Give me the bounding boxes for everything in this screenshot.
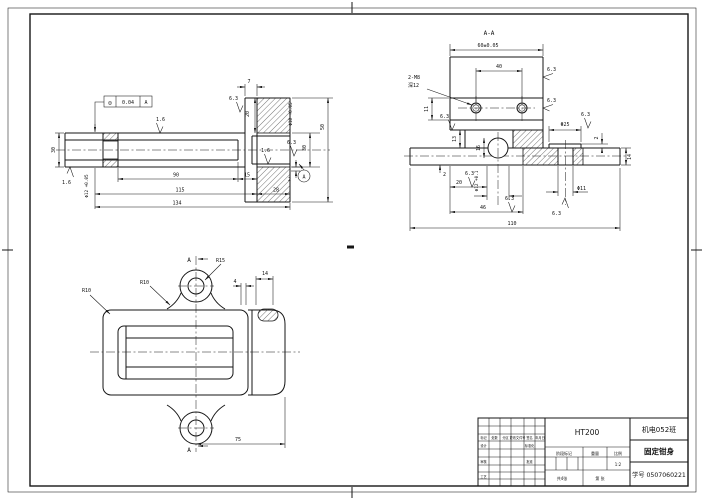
cell-process: 工艺 xyxy=(480,474,486,479)
roughness-icon: 6.3 xyxy=(287,140,297,156)
material: HT200 xyxy=(575,428,600,437)
cell-zone: 分区 xyxy=(502,435,509,440)
roughness-icon: 1.6 xyxy=(62,167,74,186)
dim-phi25: Φ25 xyxy=(560,122,569,128)
roughness-value: 1.6 xyxy=(156,117,165,123)
plan-view: A A R15 R10 R10 4 14 75 xyxy=(82,256,300,454)
dim-40: 40 xyxy=(496,64,502,70)
dim-134: 134 xyxy=(172,201,181,207)
engineering-drawing: ◎ 0.04 A 1.6 1.6 6.3 1.6 6.3 A 7 20 xyxy=(0,0,704,500)
fcf-datum: A xyxy=(144,100,147,106)
hatch-section xyxy=(523,148,558,165)
cell-mark: 标记 xyxy=(480,435,487,440)
dim-30-left: 30 xyxy=(51,147,57,153)
weight-label: 重量 xyxy=(591,450,599,456)
dim-14-plan: 14 xyxy=(262,271,268,277)
cell-design: 设计 xyxy=(480,443,487,448)
roughness-value: 6.3 xyxy=(465,171,474,177)
title-block: 机电052班 固定钳身 学号 0507060221 HT200 阶段标记 重量 … xyxy=(478,418,688,486)
roughness-value: 6.3 xyxy=(581,112,590,118)
dim-11: 11 xyxy=(424,106,430,112)
roughness-icon: 6.3 xyxy=(581,112,591,128)
dim-75: 75 xyxy=(235,437,241,443)
hatch-pin-hole-bottom xyxy=(103,159,118,167)
cell-standardization: 标准化 xyxy=(525,443,535,448)
class-name: 机电052班 xyxy=(642,425,676,434)
roughness-value: 6.3 xyxy=(552,211,561,217)
part-name: 固定钳身 xyxy=(644,446,674,456)
sheets-total: 共4张 xyxy=(557,475,568,481)
datum-letter: A xyxy=(302,175,305,181)
dim-28: 28 xyxy=(273,188,279,194)
hatch-section xyxy=(573,148,583,165)
roughness-value: 6.3 xyxy=(229,96,238,102)
cell-signature: 签名 xyxy=(526,435,532,440)
scale-label: 比例 xyxy=(614,450,622,456)
dim-7: 7 xyxy=(247,79,250,85)
dim-16: 16 xyxy=(476,145,482,151)
datum-symbol: A xyxy=(298,164,310,182)
dim-4: 4 xyxy=(233,279,236,285)
fcf-tolerance: 0.04 xyxy=(122,100,134,106)
cell-review: 审核 xyxy=(480,459,487,464)
cell-change-doc: 更改文件号 xyxy=(510,435,526,440)
drawing-border xyxy=(2,2,702,498)
dim-20: 20 xyxy=(245,111,251,117)
dim-110: 110 xyxy=(507,221,516,227)
dim-46: 46 xyxy=(480,205,486,211)
roughness-icon: 6.3 xyxy=(552,198,569,217)
dim-r15: R15 xyxy=(216,258,225,264)
roughness-value: 6.3 xyxy=(547,98,556,104)
hatch-section xyxy=(513,130,543,148)
roughness-icon: 6.3 xyxy=(229,96,243,112)
cell-count: 处数 xyxy=(491,435,498,440)
dim-50: 50 xyxy=(320,124,326,130)
section-arrow-label-top: A xyxy=(187,257,191,264)
dim-2: 2 xyxy=(288,177,291,183)
dim-115: 115 xyxy=(175,188,184,194)
thread-callout: 2-M8 xyxy=(408,75,420,81)
thread-depth: 深12 xyxy=(408,82,419,89)
roughness-icon: 1.6 xyxy=(261,148,271,164)
roughness-icon: 6.3 xyxy=(543,67,556,80)
sheet-number: 第 张 xyxy=(595,475,604,481)
roughness-value: 6.3 xyxy=(547,67,556,73)
roughness-value: 1.6 xyxy=(62,180,71,186)
stage-mark-label: 阶段标记 xyxy=(556,450,572,456)
dim-30-right: 30 xyxy=(302,145,308,151)
feature-control-frame: ◎ 0.04 A xyxy=(95,96,152,132)
roughness-value: 6.3 xyxy=(287,140,296,146)
roughness-icon: 6.3 xyxy=(440,114,455,130)
concentricity-icon: ◎ xyxy=(108,100,112,107)
dim-15: 15 xyxy=(244,173,250,179)
hatch-flange-top xyxy=(257,98,290,133)
drawing-page: ◎ 0.04 A 1.6 1.6 6.3 1.6 6.3 A 7 20 xyxy=(0,0,704,500)
roughness-value: 6.3 xyxy=(440,114,449,120)
section-arrow-label-bottom: A xyxy=(187,447,191,454)
dim-r10-fillet: R10 xyxy=(140,280,149,286)
dim-r10-corner: R10 xyxy=(82,288,91,294)
roughness-value: 6.3 xyxy=(505,196,514,202)
dim-20-section: 20 xyxy=(456,180,462,186)
scale-value: 1:2 xyxy=(615,462,622,467)
dim-14: 14 xyxy=(627,154,633,160)
roughness-icon: 6.3 xyxy=(543,98,556,111)
section-label: A-A xyxy=(484,30,495,37)
dim-90: 90 xyxy=(173,173,179,179)
roughness-value: 1.6 xyxy=(261,148,270,154)
dim-phi18: Φ18 +0.05 xyxy=(288,102,294,126)
dim-60: 60±0.05 xyxy=(477,43,498,49)
roughness-icon: 6.3 xyxy=(505,196,515,212)
side-thread-hole xyxy=(258,309,278,321)
dim-2-left: 2 xyxy=(443,172,446,178)
dim-phi12: Φ12 +0.05 xyxy=(84,174,90,198)
roughness-icon: 6.3 xyxy=(465,171,475,187)
section-view: A-A 60±0.05 40 2-M8 深12 11 13 6.3 xyxy=(404,30,633,231)
student-id: 学号 0507060221 xyxy=(632,471,686,479)
cell-date: 年月日 xyxy=(535,435,545,440)
dim-phi11: Φ11 xyxy=(577,186,586,192)
cell-approve: 批准 xyxy=(526,459,533,464)
body-outline xyxy=(103,310,248,395)
dim-2-right: 2 xyxy=(594,136,600,139)
front-view: ◎ 0.04 A 1.6 1.6 6.3 1.6 6.3 A 7 20 xyxy=(51,79,333,210)
hatch-pin-hole-top xyxy=(103,133,118,141)
hatch-flange-bottom xyxy=(257,167,290,202)
roughness-icon: 1.6 xyxy=(156,117,165,133)
dim-13: 13 xyxy=(452,136,458,142)
